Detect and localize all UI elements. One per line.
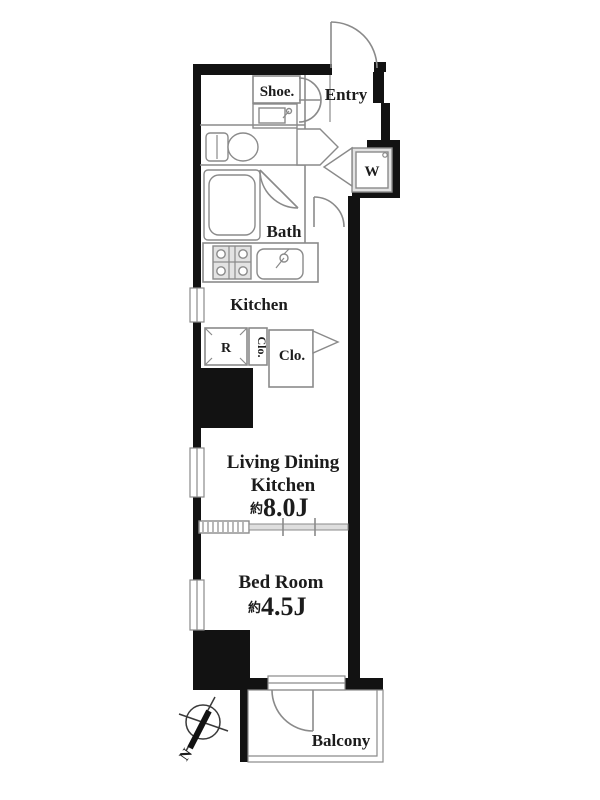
kitchen-area: Kitchen bbox=[203, 243, 318, 314]
washer-label: W bbox=[365, 164, 380, 180]
compass: N bbox=[177, 697, 228, 764]
balcony-door-arc bbox=[272, 690, 313, 731]
closet-label: Clo. bbox=[279, 348, 306, 364]
wall-right bbox=[348, 196, 360, 678]
toilet-door-shape bbox=[297, 129, 338, 165]
entry-label: Entry bbox=[325, 85, 368, 104]
fridge-label: R bbox=[221, 341, 232, 356]
wall-balcony-left bbox=[240, 690, 248, 762]
stove-burner-3 bbox=[217, 267, 225, 275]
wall-left-mid3 bbox=[193, 497, 201, 580]
wall-bottom-left bbox=[238, 678, 270, 690]
wall-pillar-kitchen bbox=[193, 368, 253, 428]
bedroom-size-label: 4.5J bbox=[261, 592, 307, 621]
bedroom-size-prefix: 約 bbox=[248, 600, 261, 615]
shoe-washbasin-area: Shoe. bbox=[253, 76, 321, 128]
ldk-size-prefix: 約 bbox=[250, 501, 263, 516]
closet-narrow-label: Clo. bbox=[255, 337, 269, 358]
wall-left-mid1 bbox=[193, 322, 201, 368]
floor-plan-canvas: Entry Shoe. Bath W bbox=[0, 0, 600, 800]
wall-left-upper bbox=[193, 64, 201, 288]
entry-door-arc bbox=[331, 22, 377, 68]
wall-top bbox=[193, 64, 332, 75]
balcony-label: Balcony bbox=[312, 731, 371, 750]
ldk-size-label: 8.0J bbox=[263, 493, 309, 522]
stove-burner-4 bbox=[239, 267, 247, 275]
wall-entry-right-upper bbox=[373, 72, 384, 103]
balcony-area: Balcony bbox=[248, 690, 383, 762]
balcony-outline bbox=[248, 690, 383, 762]
bedroom: Bed Room 約 4.5J bbox=[239, 572, 324, 621]
stove-burner-2 bbox=[239, 250, 247, 258]
closet-door-shape bbox=[313, 331, 338, 353]
bedroom-label: Bed Room bbox=[239, 572, 324, 593]
kitchen-label: Kitchen bbox=[230, 295, 288, 314]
wall-bottom-right bbox=[345, 678, 383, 690]
hall-door-arc bbox=[314, 197, 344, 227]
shoe-label: Shoe. bbox=[260, 84, 295, 100]
stove-burner-1 bbox=[217, 250, 225, 258]
pleated-screen-box bbox=[199, 521, 249, 533]
wall-entry-stub bbox=[374, 62, 386, 72]
bath-room: Bath bbox=[204, 170, 302, 241]
compass-needle bbox=[190, 711, 209, 748]
floor-plan: Entry Shoe. Bath W bbox=[0, 0, 600, 800]
ldk-label-line1: Living Dining bbox=[227, 452, 340, 473]
entry-area: Entry bbox=[325, 22, 377, 122]
washbasin-bowl bbox=[259, 108, 285, 123]
compass-north-label: N bbox=[177, 746, 196, 764]
kitchen-sink bbox=[257, 249, 303, 279]
bath-label: Bath bbox=[267, 222, 303, 241]
toilet-bowl bbox=[228, 133, 258, 161]
bathtub-inner bbox=[209, 175, 255, 235]
ldk-room: Living Dining Kitchen 約 8.0J bbox=[227, 452, 340, 522]
sliding-partition-track bbox=[249, 524, 348, 530]
wall-left-mid2 bbox=[193, 428, 201, 448]
